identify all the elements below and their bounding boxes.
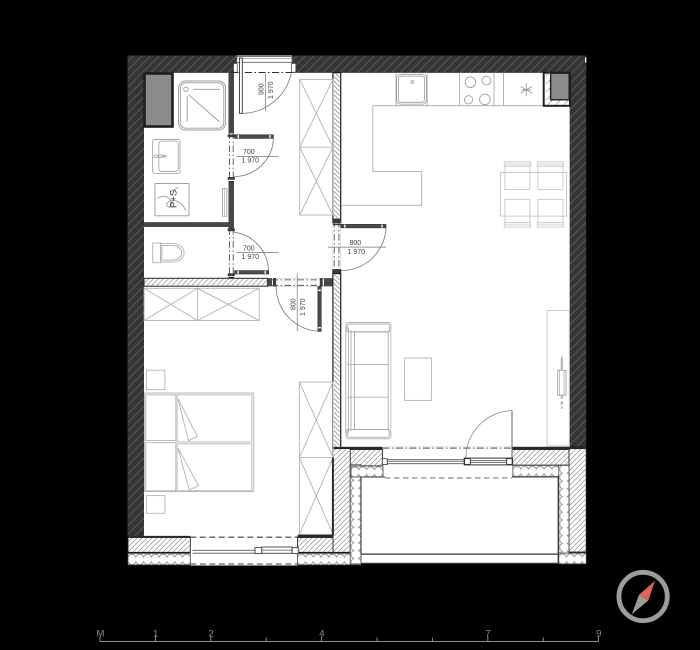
svg-text:700: 700 — [243, 245, 255, 252]
svg-text:800: 800 — [290, 298, 297, 310]
svg-text:1 970: 1 970 — [242, 254, 260, 261]
svg-text:1 970: 1 970 — [242, 158, 260, 165]
svg-text:1 970: 1 970 — [300, 298, 307, 316]
svg-text:2: 2 — [208, 629, 213, 640]
svg-text:900: 900 — [258, 83, 265, 95]
svg-text:800: 800 — [350, 240, 362, 247]
svg-text:700: 700 — [243, 149, 255, 156]
svg-text:9: 9 — [596, 629, 601, 640]
svg-text:1 970: 1 970 — [348, 249, 366, 256]
svg-text:1 970: 1 970 — [268, 81, 275, 99]
svg-text:4: 4 — [319, 629, 324, 640]
svg-text:7: 7 — [485, 629, 490, 640]
svg-text:P+S: P+S — [169, 190, 180, 208]
svg-text:M: M — [97, 629, 105, 640]
svg-text:1: 1 — [153, 629, 158, 640]
